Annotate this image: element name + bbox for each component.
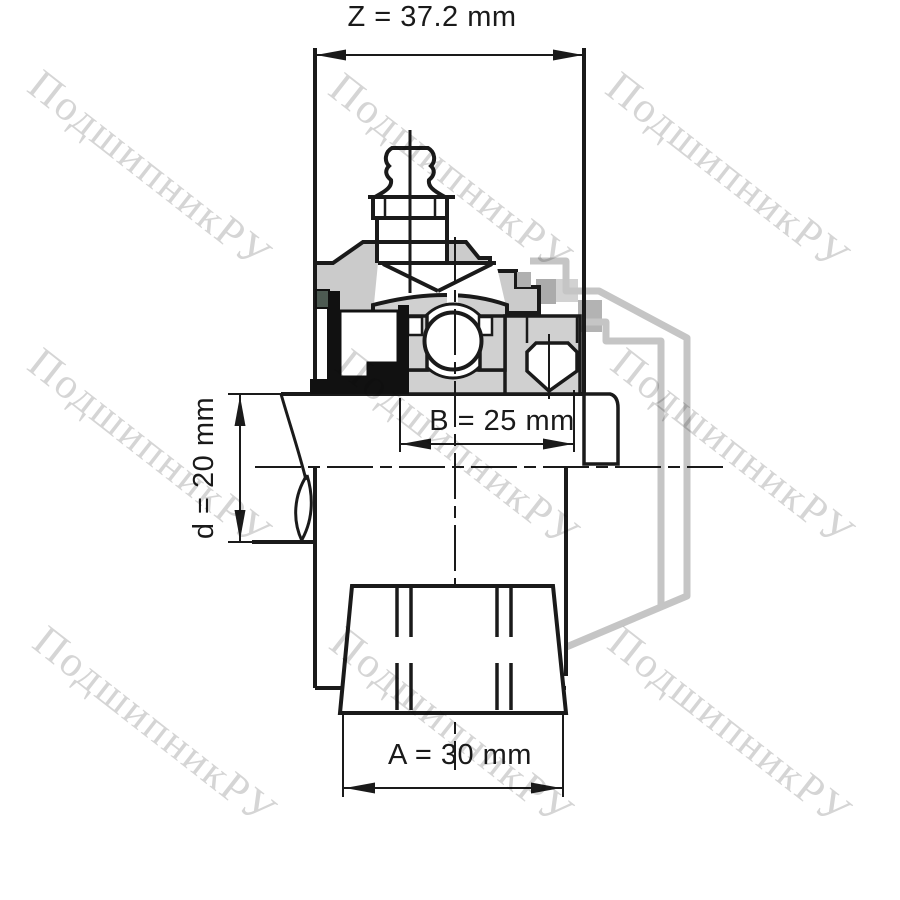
seal-retainer-accent xyxy=(316,290,329,308)
dim-b-arrow-right xyxy=(543,439,573,450)
watermark-text: ПодшипникРУ xyxy=(597,63,858,281)
watermark-text: ПодшипникРУ xyxy=(24,617,285,835)
slinger-flange xyxy=(310,379,327,394)
watermarks: ПодшипникРУ ПодшипникРУ ПодшипникРУ Подш… xyxy=(19,61,863,836)
dim-a-arrow-left xyxy=(345,783,375,794)
dim-z-label: Z = 37.2 mm xyxy=(347,1,516,33)
seal-groove-left xyxy=(408,317,422,335)
watermark-text: ПодшипникРУ xyxy=(19,61,280,279)
dim-z-arrow-left xyxy=(316,50,346,61)
collar-outboard xyxy=(584,394,618,464)
ball xyxy=(425,313,482,370)
dim-z-arrow-right xyxy=(553,50,583,61)
dim-d-arrow-top xyxy=(235,396,246,426)
technical-drawing: Z = 37.2 mm B = 25 mm d = 20 mm A = 30 m… xyxy=(0,0,900,900)
housing-step-shade xyxy=(517,272,531,287)
thread-hole-fill xyxy=(379,244,445,263)
drawing-canvas: Z = 37.2 mm B = 25 mm d = 20 mm A = 30 m… xyxy=(0,0,900,900)
watermark-text: ПодшипникРУ xyxy=(602,339,863,557)
watermark-text: ПодшипникРУ xyxy=(599,618,860,836)
watermark-text: ПодшипникРУ xyxy=(19,339,280,557)
dimension-z: Z = 37.2 mm xyxy=(316,1,583,61)
eccentric-collar xyxy=(584,394,618,464)
